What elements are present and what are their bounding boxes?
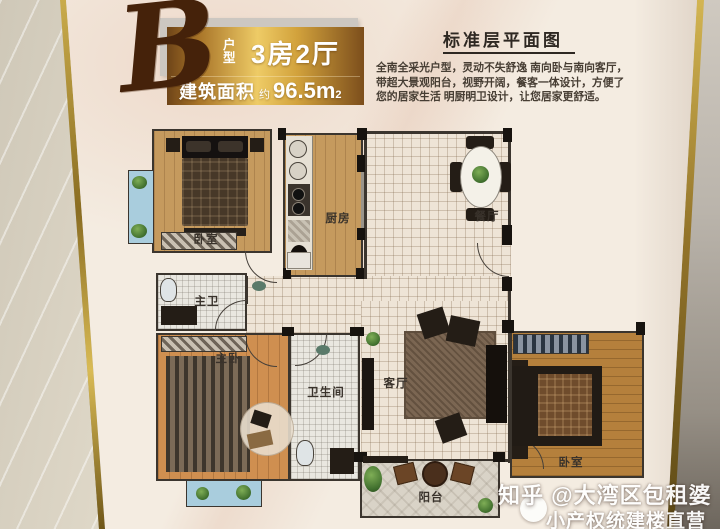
bed-icon: [182, 158, 248, 226]
photo-scene: 户型 3房2厅 建筑面积 约 96.5m 2 B 标准层平面图 全南全采光户型，…: [0, 0, 720, 529]
sink-icon: [252, 281, 266, 291]
floorplan: 卧室 厨房 餐厅 主卫 主卧 卫生间 客厅 阳台 卧室: [0, 0, 720, 529]
wall-pier: [502, 320, 514, 333]
counter-board-icon: [288, 220, 310, 242]
wall-pier: [357, 228, 365, 240]
room-label-balcony: 阳台: [419, 489, 444, 505]
wall-dining-left: [364, 131, 367, 279]
tv-cabinet-icon: [362, 358, 374, 430]
nightstand-icon: [166, 138, 180, 152]
wall-dining-top: [366, 131, 511, 134]
vanity-icon: [330, 448, 354, 474]
wall-pier: [503, 128, 512, 142]
wardrobe-icon: [513, 334, 589, 354]
room-label-bedroom-top: 卧室: [194, 231, 219, 247]
room-label-living: 客厅: [384, 375, 409, 391]
nightstand-icon: [250, 138, 264, 152]
wall-pier: [278, 128, 286, 140]
nightstand-icon: [512, 444, 528, 459]
sink-icon: [316, 345, 330, 355]
rug-icon: [404, 331, 496, 419]
balcony-sliding-door: [363, 456, 408, 463]
room-label-master-bedroom: 主卧: [216, 350, 241, 366]
wall-pier: [502, 225, 512, 245]
room-label-bedroom-right: 卧室: [559, 454, 584, 470]
burner-icon: [292, 202, 305, 215]
pillow-icon: [218, 141, 243, 152]
round-rug-icon: [240, 402, 294, 456]
wall-pier: [636, 322, 645, 335]
wall-pier: [357, 128, 367, 140]
room-label-dining: 餐厅: [475, 208, 500, 224]
plant-icon: [364, 466, 382, 492]
burner-icon: [292, 188, 305, 201]
blanket-icon: [538, 374, 592, 436]
wall-pier: [357, 155, 365, 172]
wall-pier: [493, 452, 505, 462]
curtain-bed-icon: [166, 356, 250, 472]
wall-pier: [282, 327, 294, 336]
kitchen-sliding-door: [361, 172, 364, 228]
wall-pier: [356, 268, 364, 279]
sink-basin-icon: [289, 140, 307, 158]
plant-icon: [196, 487, 209, 500]
vanity-icon: [161, 306, 197, 325]
plant-icon: [366, 332, 380, 346]
plant-icon: [132, 176, 147, 189]
toilet-icon: [160, 278, 177, 302]
sink-basin-icon: [289, 162, 307, 180]
table-plant-icon: [472, 166, 489, 183]
plant-icon: [131, 224, 147, 238]
plant-icon: [478, 498, 493, 513]
wall-pier: [502, 277, 512, 291]
sofa-icon: [486, 345, 507, 423]
wall-pier: [350, 327, 364, 336]
patio-table-icon: [422, 461, 448, 487]
room-label-bathroom: 卫生间: [307, 384, 345, 400]
fridge-icon: [287, 252, 311, 269]
pillow-icon: [186, 141, 211, 152]
room-label-kitchen: 厨房: [326, 210, 351, 226]
toilet-icon: [296, 440, 314, 466]
room-label-master-bath: 主卫: [195, 293, 220, 309]
watermark-line2: 小产权统建楼直营: [546, 506, 706, 529]
plant-icon: [236, 485, 251, 500]
